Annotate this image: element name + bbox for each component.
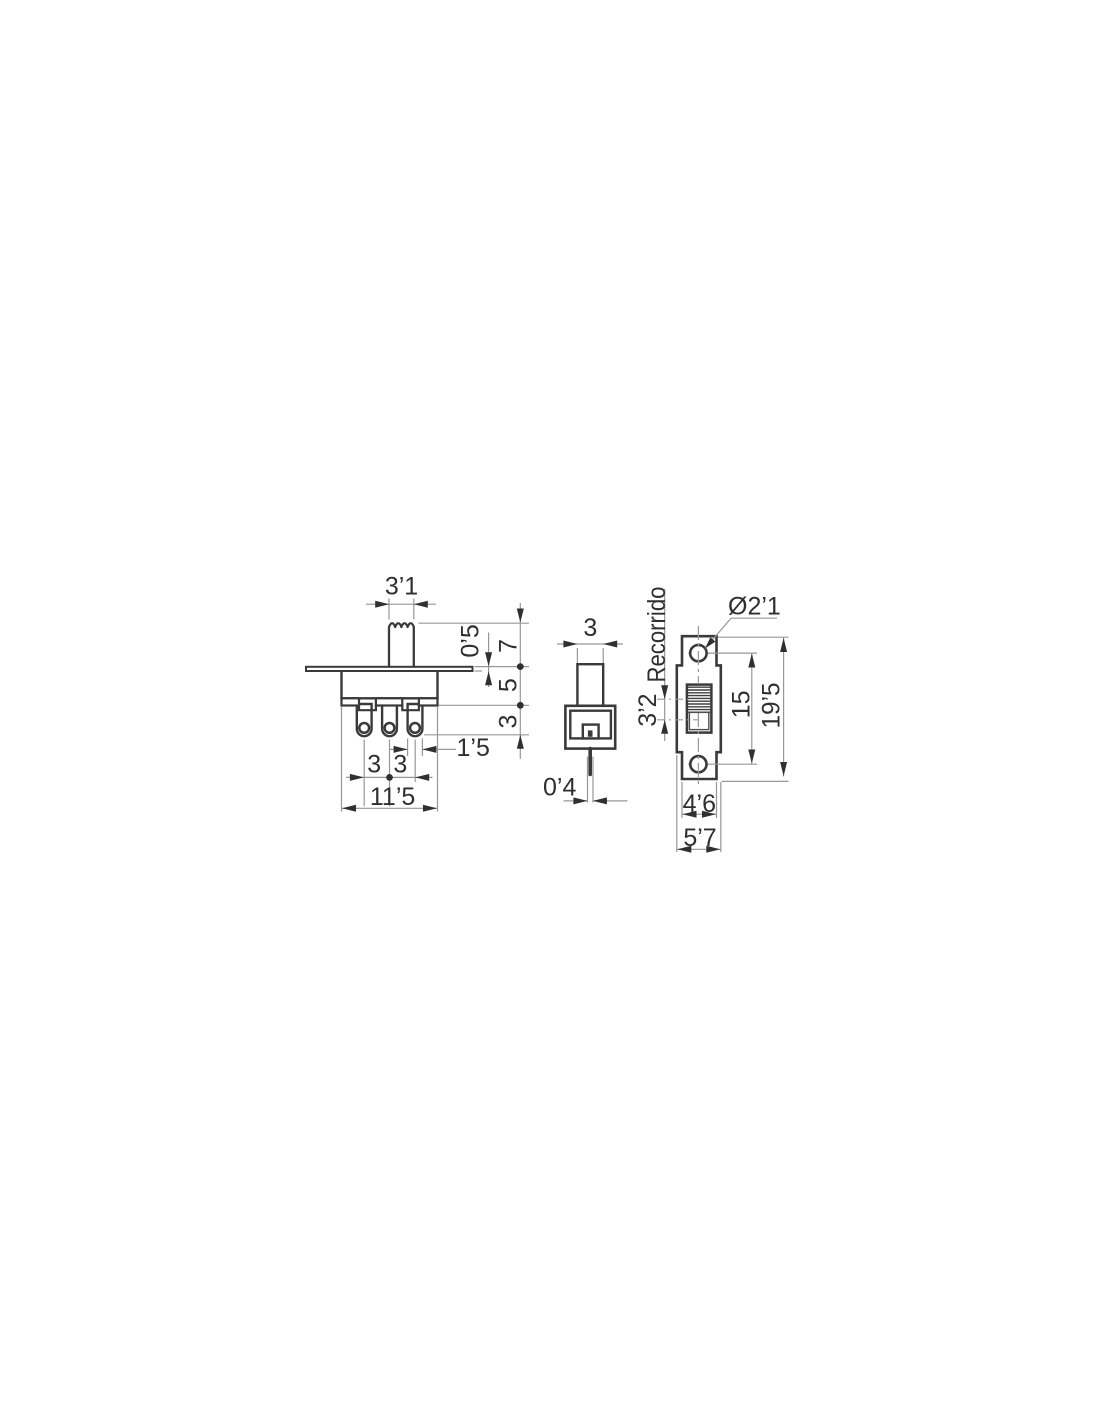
svg-text:3: 3 (494, 715, 522, 729)
svg-text:3: 3 (393, 750, 407, 778)
svg-text:7: 7 (494, 639, 522, 653)
svg-text:3’1: 3’1 (385, 573, 418, 601)
svg-text:11’5: 11’5 (370, 783, 415, 811)
svg-text:5: 5 (494, 678, 522, 692)
svg-text:Recorrido: Recorrido (643, 587, 671, 683)
svg-text:4’6: 4’6 (683, 790, 716, 818)
svg-text:3’2: 3’2 (634, 693, 662, 726)
svg-text:0’4: 0’4 (543, 773, 576, 801)
svg-text:15: 15 (727, 690, 755, 718)
svg-text:1’5: 1’5 (457, 734, 490, 762)
svg-text:0’5: 0’5 (457, 624, 485, 657)
svg-text:Ø2’1: Ø2’1 (728, 593, 781, 621)
svg-text:5’7: 5’7 (683, 824, 716, 852)
svg-text:19’5: 19’5 (758, 683, 786, 729)
svg-text:3: 3 (367, 750, 381, 778)
svg-text:3: 3 (583, 614, 597, 642)
